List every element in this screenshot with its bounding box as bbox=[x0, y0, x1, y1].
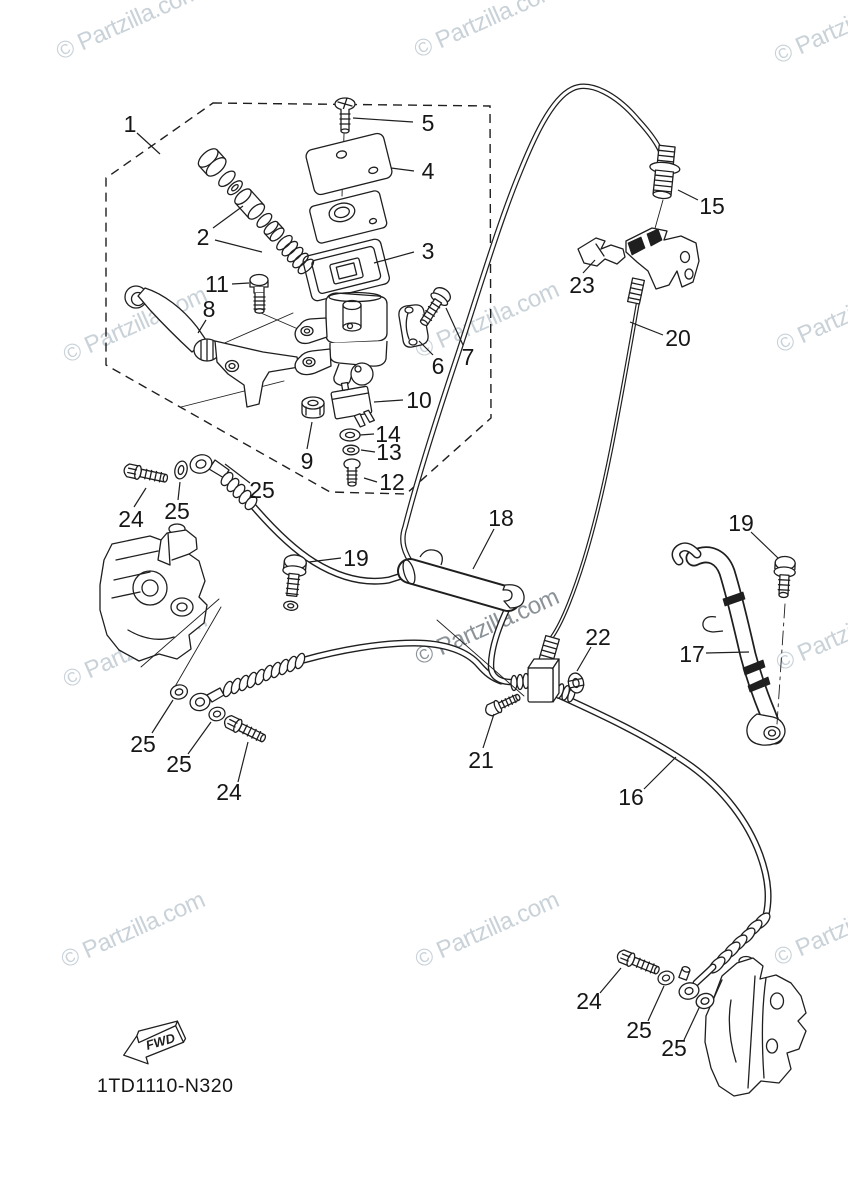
watermark: © Partzilla.com bbox=[772, 271, 848, 358]
pipe-20-top-stub bbox=[628, 278, 645, 304]
washer-25 bbox=[207, 705, 226, 722]
piston-kit-2 bbox=[195, 145, 318, 277]
hose-16-elbow bbox=[679, 966, 691, 980]
callout-3: 3 bbox=[422, 238, 435, 264]
washer-14 bbox=[340, 429, 360, 441]
diaphragm-plate bbox=[309, 190, 388, 244]
fwd-arrow: FWD bbox=[118, 1019, 189, 1069]
washer-25 bbox=[656, 969, 675, 987]
hose-guard-18 bbox=[401, 550, 524, 608]
callout-23: 23 bbox=[569, 272, 595, 298]
callout-25: 25 bbox=[164, 498, 190, 524]
callout-25: 25 bbox=[661, 1035, 687, 1061]
callout-9: 9 bbox=[301, 448, 314, 474]
callout-2: 2 bbox=[197, 224, 210, 250]
upper-banjo-group bbox=[123, 452, 259, 512]
brake-pipe-20 bbox=[539, 302, 638, 670]
callout-21: 21 bbox=[468, 747, 494, 773]
callout-24: 24 bbox=[118, 506, 144, 532]
bolt-19-right bbox=[773, 556, 796, 724]
clip-23 bbox=[578, 238, 625, 266]
hose-ring-terminal bbox=[188, 452, 214, 476]
callout-25: 25 bbox=[130, 731, 156, 757]
callout-11: 11 bbox=[205, 271, 229, 297]
junction-block bbox=[528, 668, 553, 702]
reservoir-cap-4 bbox=[305, 132, 394, 196]
bolt-24 bbox=[123, 463, 169, 486]
callout-25: 25 bbox=[166, 751, 192, 777]
callout-19: 19 bbox=[728, 510, 754, 536]
watermark: © Partzilla.com bbox=[410, 0, 562, 64]
callout-17: 17 bbox=[679, 641, 705, 667]
handlebar-bracket bbox=[626, 228, 699, 304]
hose-upper-left bbox=[253, 506, 414, 581]
fitting-15 bbox=[647, 145, 682, 200]
callout-1: 1 bbox=[124, 111, 137, 137]
hose-16 bbox=[556, 694, 773, 1001]
front-caliper-banjo-group bbox=[169, 652, 307, 745]
parts-diagram: © Partzilla.com © Partzilla.com © Partzi… bbox=[0, 0, 848, 1200]
watermark-grid: © Partzilla.com © Partzilla.com © Partzi… bbox=[52, 0, 848, 974]
parts-diagram-page: © Partzilla.com © Partzilla.com © Partzi… bbox=[0, 0, 848, 1200]
callout-22: 22 bbox=[585, 624, 611, 650]
bolt-24 bbox=[615, 948, 661, 977]
bolt-21 bbox=[483, 691, 522, 718]
callout-16: 16 bbox=[618, 784, 644, 810]
rear-brake-caliper bbox=[705, 957, 806, 1097]
callout-25: 25 bbox=[249, 477, 275, 503]
watermark: © Partzilla.com bbox=[411, 276, 563, 363]
callout-24: 24 bbox=[216, 779, 242, 805]
watermark: © Partzilla.com bbox=[411, 886, 563, 973]
watermark: © Partzilla.com bbox=[770, 0, 848, 70]
callout-24: 24 bbox=[576, 988, 602, 1014]
callout-8: 8 bbox=[203, 296, 216, 322]
diagram-code: 1TD1110-N320 bbox=[97, 1075, 233, 1097]
callout-5: 5 bbox=[422, 110, 435, 136]
callout-10: 10 bbox=[406, 387, 432, 413]
watermark: © Partzilla.com bbox=[770, 884, 848, 971]
callout-6: 6 bbox=[432, 353, 445, 379]
watermark: © Partzilla.com bbox=[57, 886, 209, 973]
screw-11 bbox=[250, 275, 268, 314]
washer-25 bbox=[169, 683, 189, 701]
callout-14: 14 bbox=[375, 421, 401, 447]
callout-25: 25 bbox=[626, 1017, 652, 1043]
screw-12 bbox=[344, 459, 360, 486]
callout-4: 4 bbox=[422, 158, 435, 184]
washer-13 bbox=[343, 445, 359, 455]
clamp-6 bbox=[399, 305, 428, 347]
screw-5 bbox=[335, 98, 355, 133]
washer-25 bbox=[173, 460, 189, 480]
callout-7: 7 bbox=[462, 344, 475, 370]
callout-12: 12 bbox=[379, 469, 405, 495]
callout-18: 18 bbox=[488, 505, 514, 531]
callout-20: 20 bbox=[665, 325, 691, 351]
watermark: © Partzilla.com bbox=[52, 0, 204, 66]
callout-19: 19 bbox=[343, 545, 369, 571]
bolt-24 bbox=[222, 713, 268, 745]
callout-15: 15 bbox=[699, 193, 725, 219]
nut-9 bbox=[302, 397, 324, 418]
master-cylinder-body bbox=[295, 293, 387, 386]
front-hose-coil bbox=[222, 652, 307, 698]
bolt-19-left bbox=[279, 554, 308, 612]
brake-switch-10 bbox=[330, 379, 375, 431]
